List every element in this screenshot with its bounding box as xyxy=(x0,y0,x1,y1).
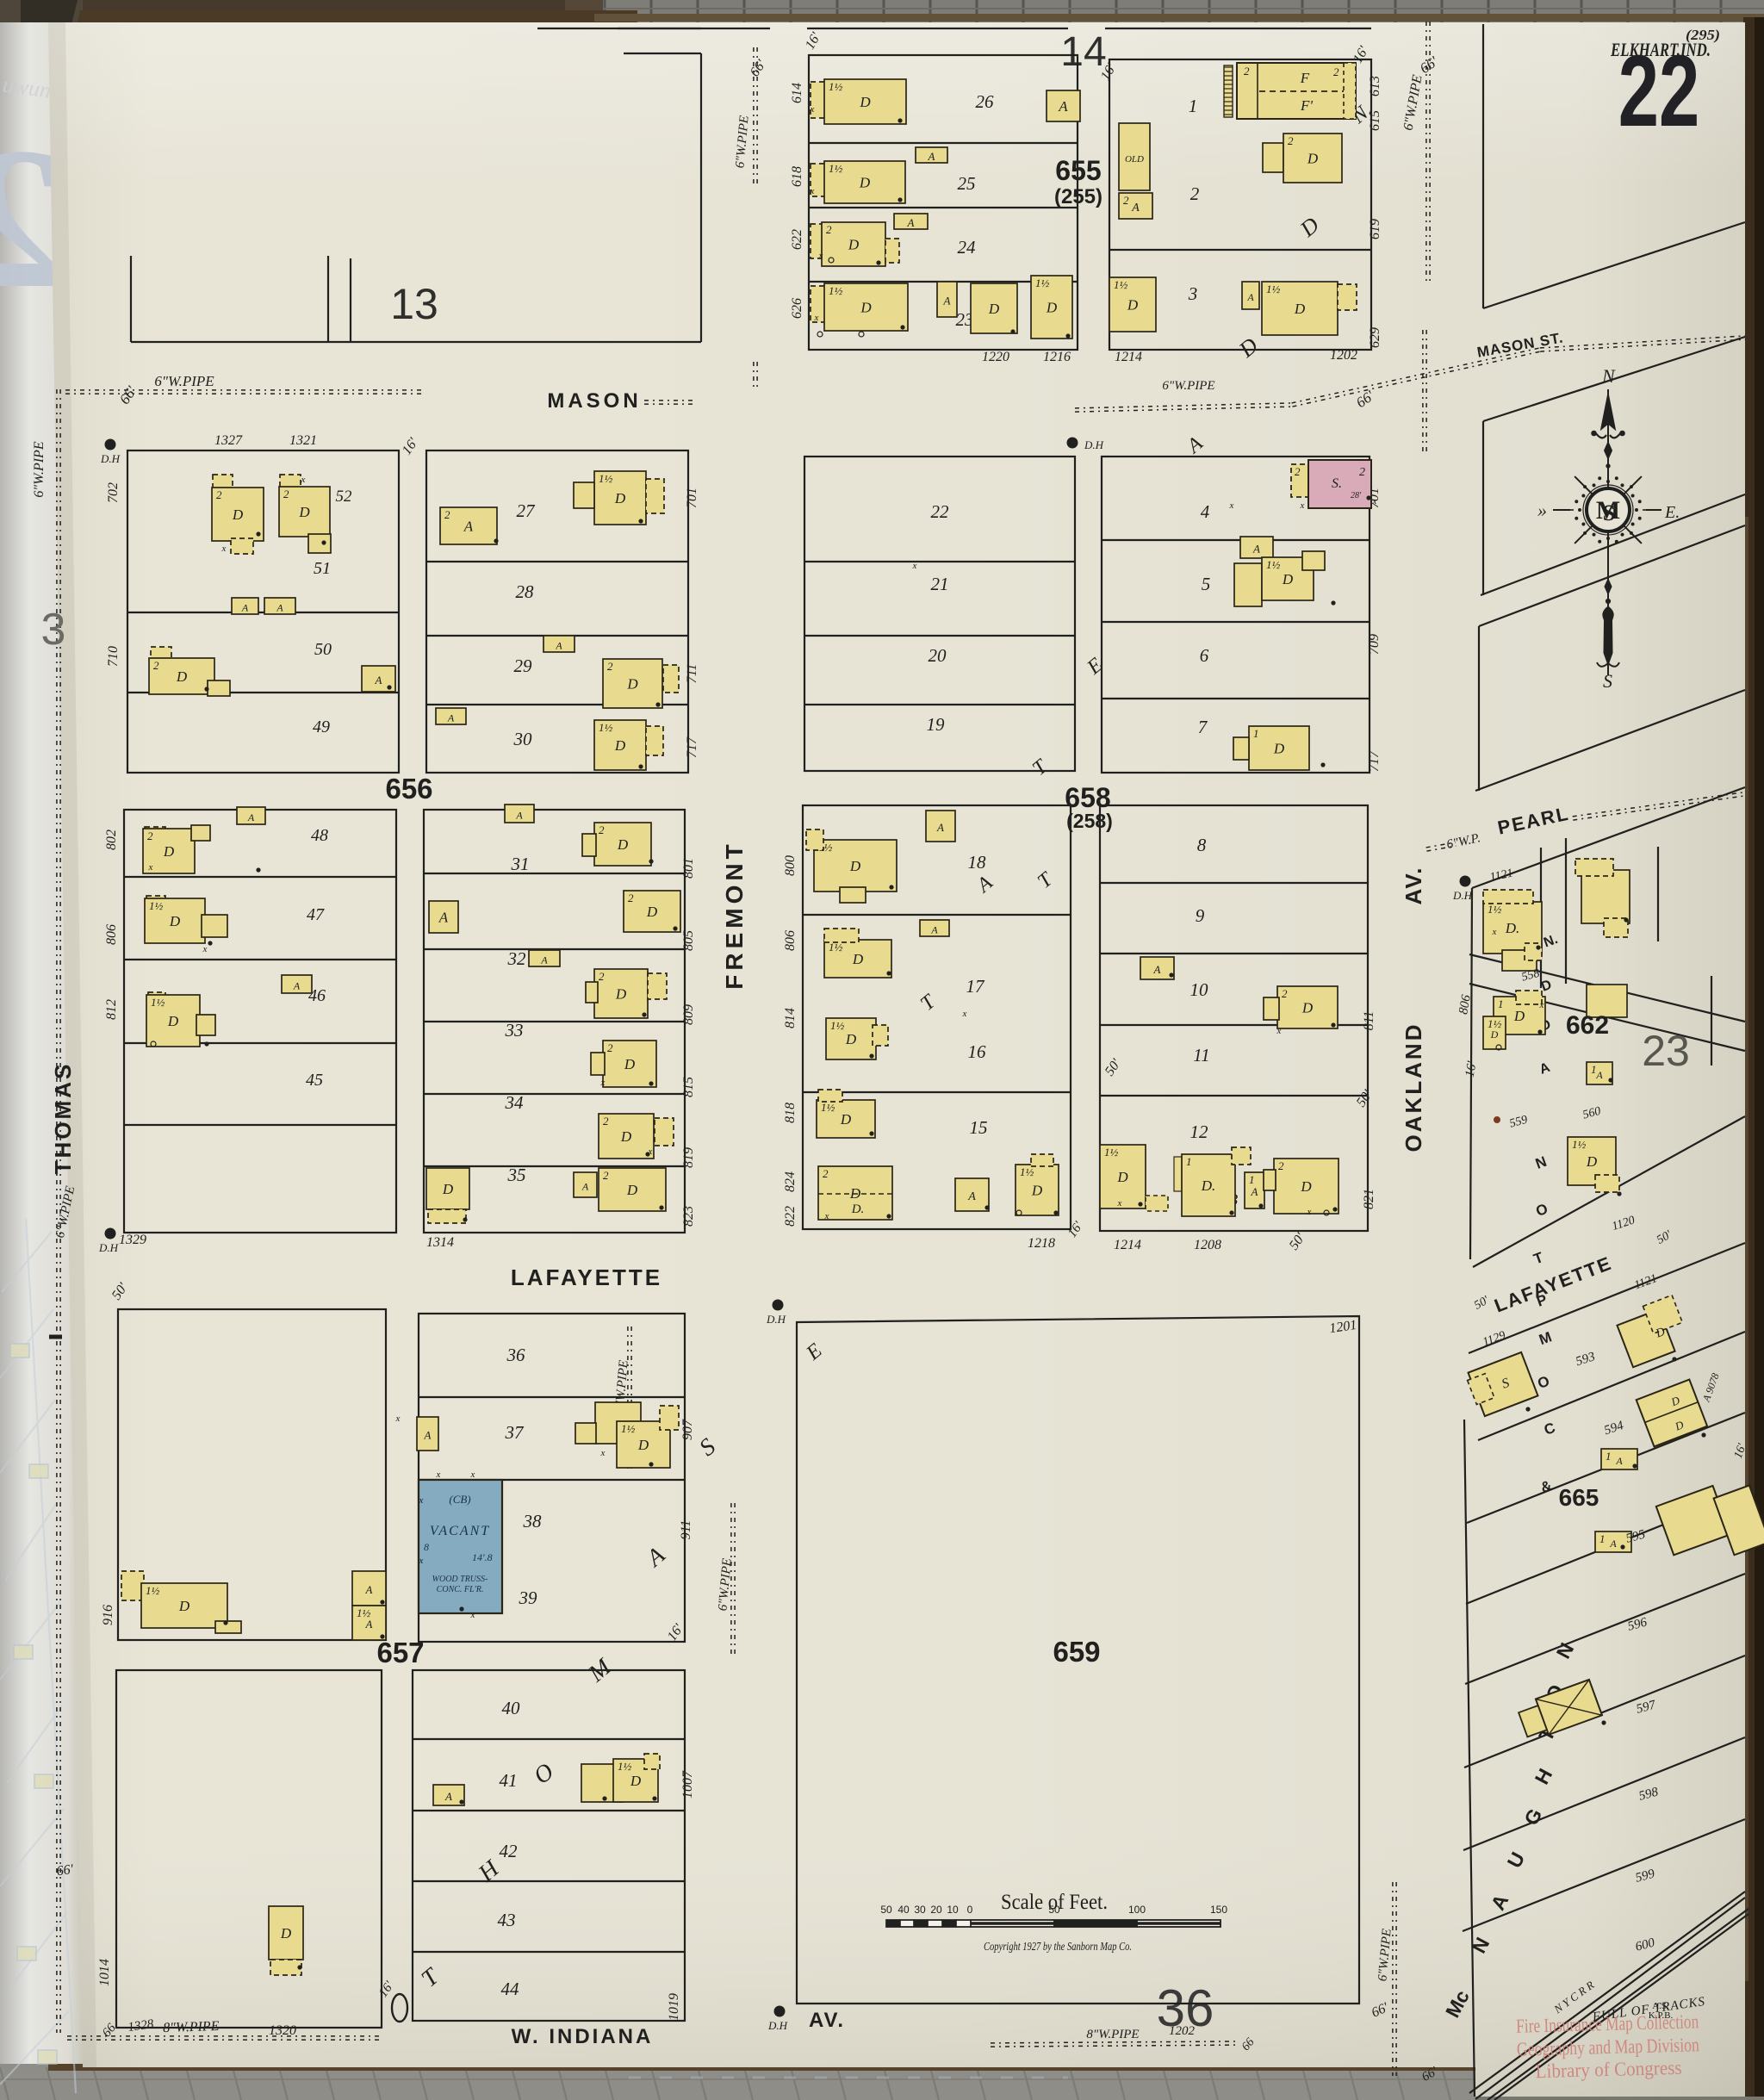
svg-text:710: 710 xyxy=(106,646,121,667)
svg-text:13: 13 xyxy=(390,280,438,328)
svg-text:818: 818 xyxy=(783,1103,798,1123)
svg-text:16': 16' xyxy=(1463,1059,1480,1078)
svg-text:A: A xyxy=(276,602,283,614)
svg-text:1208: 1208 xyxy=(1194,1238,1221,1252)
svg-text:D: D xyxy=(637,1437,649,1453)
svg-text:43: 43 xyxy=(498,1910,516,1930)
svg-text:618: 618 xyxy=(790,166,804,187)
svg-text:629: 629 xyxy=(1368,327,1382,348)
svg-text:D: D xyxy=(617,836,629,853)
svg-text:D: D xyxy=(852,951,864,967)
svg-text:D: D xyxy=(1031,1183,1043,1199)
svg-text:31: 31 xyxy=(511,854,530,874)
svg-text:A: A xyxy=(928,150,935,163)
svg-text:(255): (255) xyxy=(1054,185,1102,208)
svg-text:1218: 1218 xyxy=(1028,1236,1055,1251)
svg-text:1½: 1½ xyxy=(1266,283,1281,295)
svg-text:D: D xyxy=(163,843,175,860)
svg-text:5: 5 xyxy=(1202,574,1211,594)
svg-text:D.: D. xyxy=(1201,1177,1216,1194)
svg-text:40: 40 xyxy=(898,1904,910,1916)
svg-text:6"W.PIPE: 6"W.PIPE xyxy=(1162,379,1214,393)
svg-text:S.: S. xyxy=(1332,476,1342,491)
svg-text:10: 10 xyxy=(947,1904,959,1916)
svg-text:23: 23 xyxy=(1642,1027,1690,1075)
svg-text:22: 22 xyxy=(1618,34,1699,147)
svg-text:1½: 1½ xyxy=(599,721,613,734)
svg-text:655: 655 xyxy=(1055,155,1101,186)
svg-text:50: 50 xyxy=(880,1904,892,1916)
svg-text:A: A xyxy=(447,712,455,724)
svg-text:D: D xyxy=(1282,571,1294,587)
svg-text:D: D xyxy=(1490,1028,1499,1041)
svg-text:N: N xyxy=(1601,365,1616,387)
svg-text:18: 18 xyxy=(968,852,987,873)
svg-text:50: 50 xyxy=(314,640,332,659)
svg-text:D: D xyxy=(859,175,871,191)
svg-text:1½: 1½ xyxy=(1020,1165,1034,1178)
svg-text:D: D xyxy=(1513,1008,1525,1024)
svg-text:815: 815 xyxy=(681,1077,696,1097)
svg-text:D: D xyxy=(1300,1178,1312,1195)
svg-text:6: 6 xyxy=(1200,645,1209,666)
svg-text:Copyright 1927 by the Sanborn: Copyright 1927 by the Sanborn Map Co. xyxy=(984,1941,1132,1954)
svg-text:x: x xyxy=(1539,1000,1544,1010)
svg-text:1327: 1327 xyxy=(214,433,243,448)
svg-text:8: 8 xyxy=(1197,835,1207,855)
svg-text:D: D xyxy=(1273,741,1285,757)
svg-text:2: 2 xyxy=(147,829,153,842)
svg-text:701: 701 xyxy=(685,488,699,508)
svg-text:17: 17 xyxy=(966,976,986,997)
svg-text:14'.8: 14'.8 xyxy=(472,1551,493,1563)
svg-text:x: x xyxy=(202,944,208,954)
svg-text:1: 1 xyxy=(1186,1155,1192,1168)
svg-text:A: A xyxy=(293,980,301,992)
svg-text:A: A xyxy=(1058,98,1068,115)
svg-text:2: 2 xyxy=(1282,987,1288,1000)
svg-text:2: 2 xyxy=(153,659,159,672)
svg-text:2: 2 xyxy=(607,1041,613,1054)
svg-text:FREMONT: FREMONT xyxy=(721,840,748,989)
svg-text:F: F xyxy=(1300,70,1310,86)
svg-text:D: D xyxy=(840,1111,852,1128)
svg-text:2: 2 xyxy=(444,508,450,521)
svg-text:39: 39 xyxy=(519,1587,538,1608)
svg-text:x: x xyxy=(600,1078,606,1088)
svg-text:(CB): (CB) xyxy=(449,1493,470,1506)
svg-text:A: A xyxy=(424,1429,432,1442)
svg-text:8: 8 xyxy=(424,1541,429,1553)
svg-text:811: 811 xyxy=(1362,1011,1376,1031)
svg-text:LAFAYETTE: LAFAYETTE xyxy=(511,1264,662,1290)
svg-text:2: 2 xyxy=(1123,194,1129,207)
svg-text:30: 30 xyxy=(513,729,533,749)
svg-text:D: D xyxy=(630,1773,642,1789)
svg-text:38: 38 xyxy=(523,1511,543,1532)
svg-text:3: 3 xyxy=(41,605,66,655)
svg-text:F': F' xyxy=(1300,97,1313,114)
svg-text:2: 2 xyxy=(599,823,605,836)
svg-text:14: 14 xyxy=(1060,29,1106,75)
svg-text:34: 34 xyxy=(505,1092,525,1113)
svg-text:D: D xyxy=(848,237,860,253)
svg-text:51: 51 xyxy=(314,559,331,578)
svg-text:1007: 1007 xyxy=(680,1770,695,1799)
svg-text:824: 824 xyxy=(783,1171,798,1192)
svg-text:D: D xyxy=(860,300,872,316)
svg-text:x: x xyxy=(1117,1198,1122,1208)
svg-text:4: 4 xyxy=(1201,501,1210,522)
svg-text:11: 11 xyxy=(1193,1045,1209,1066)
svg-text:D.H: D.H xyxy=(98,1241,119,1254)
svg-text:916: 916 xyxy=(101,1605,115,1625)
svg-text:AV.: AV. xyxy=(809,2009,845,2032)
svg-text:805: 805 xyxy=(681,930,696,951)
svg-text:D: D xyxy=(620,1128,632,1145)
svg-text:A: A xyxy=(1595,1069,1603,1081)
svg-text:1216: 1216 xyxy=(1043,350,1071,364)
svg-text:33: 33 xyxy=(505,1020,524,1041)
svg-text:OLD: OLD xyxy=(1125,154,1144,165)
svg-text:D: D xyxy=(988,301,1000,317)
svg-text:D: D xyxy=(1046,300,1058,316)
svg-text:622: 622 xyxy=(790,229,804,250)
svg-text:25: 25 xyxy=(958,173,976,194)
svg-text:709: 709 xyxy=(1367,634,1382,655)
svg-text:A: A xyxy=(463,519,474,535)
svg-text:800: 800 xyxy=(783,855,798,876)
svg-text:x: x xyxy=(810,104,815,115)
svg-text:A: A xyxy=(438,910,449,926)
svg-text:36: 36 xyxy=(506,1345,526,1365)
svg-text:45: 45 xyxy=(306,1071,323,1090)
svg-text:2: 2 xyxy=(599,970,605,983)
svg-text:x: x xyxy=(1276,1026,1282,1036)
svg-text:1½: 1½ xyxy=(146,1584,160,1597)
svg-text:1½: 1½ xyxy=(821,1101,835,1114)
svg-text:614: 614 xyxy=(790,83,804,103)
svg-text:711: 711 xyxy=(685,664,699,684)
svg-text:A: A xyxy=(365,1618,373,1631)
svg-text:16: 16 xyxy=(968,1041,987,1062)
svg-text:x: x xyxy=(810,186,815,196)
svg-text:717: 717 xyxy=(1367,750,1382,772)
svg-text:A: A xyxy=(930,924,938,936)
svg-text:D.H: D.H xyxy=(1084,438,1104,451)
svg-text:1019: 1019 xyxy=(667,1993,681,2021)
svg-text:1: 1 xyxy=(1599,1532,1606,1545)
svg-text:D: D xyxy=(626,1182,638,1198)
svg-text:19: 19 xyxy=(927,714,946,735)
svg-text:659: 659 xyxy=(1053,1636,1100,1668)
svg-text:717: 717 xyxy=(685,736,699,758)
svg-text:615: 615 xyxy=(1368,110,1382,131)
svg-text:36: 36 xyxy=(1157,1979,1214,2037)
svg-text:D: D xyxy=(298,504,310,520)
svg-text:1½: 1½ xyxy=(357,1606,371,1619)
svg-text:29: 29 xyxy=(514,655,533,676)
svg-text:D: D xyxy=(280,1925,292,1942)
svg-text:26: 26 xyxy=(976,91,995,112)
svg-text:822: 822 xyxy=(783,1206,798,1227)
svg-text:x: x xyxy=(470,1469,475,1480)
svg-text:22: 22 xyxy=(931,501,950,522)
svg-text:2: 2 xyxy=(603,1115,609,1128)
svg-text:9: 9 xyxy=(1196,905,1205,926)
svg-text:28': 28' xyxy=(1351,491,1362,500)
svg-text:A: A xyxy=(1609,1538,1617,1550)
svg-text:D.H: D.H xyxy=(766,1313,786,1326)
svg-text:7: 7 xyxy=(1198,717,1208,737)
svg-text:907: 907 xyxy=(680,1419,695,1440)
svg-text:2: 2 xyxy=(628,892,634,904)
svg-text:662: 662 xyxy=(1566,1011,1609,1040)
svg-text:1314: 1314 xyxy=(426,1235,454,1250)
svg-text:A: A xyxy=(365,1583,373,1596)
svg-text:D: D xyxy=(615,986,627,1003)
svg-text:x: x xyxy=(600,1448,606,1458)
svg-text:CONC. FL'R.: CONC. FL'R. xyxy=(437,1585,484,1594)
svg-text:x: x xyxy=(436,1469,441,1480)
svg-text:x: x xyxy=(470,1610,475,1620)
svg-text:D.H: D.H xyxy=(1452,889,1473,902)
svg-text:66': 66' xyxy=(56,1862,75,1879)
svg-text:A: A xyxy=(515,810,523,822)
svg-text:626: 626 xyxy=(790,298,804,319)
svg-text:27: 27 xyxy=(517,500,537,521)
svg-text:x: x xyxy=(419,1556,424,1566)
svg-text:1½: 1½ xyxy=(1572,1138,1587,1151)
svg-text:35: 35 xyxy=(507,1165,526,1185)
svg-text:x: x xyxy=(221,544,227,554)
svg-text:823: 823 xyxy=(681,1206,696,1227)
svg-text:6"W.PIPE: 6"W.PIPE xyxy=(32,441,47,497)
svg-text:1: 1 xyxy=(1249,1173,1255,1186)
svg-text:1½: 1½ xyxy=(149,899,164,912)
svg-text:2: 2 xyxy=(1359,466,1365,479)
svg-text:1214: 1214 xyxy=(1114,1238,1141,1252)
svg-text:1214: 1214 xyxy=(1115,350,1142,364)
svg-text:D: D xyxy=(178,1598,190,1614)
svg-text:x: x xyxy=(148,862,153,873)
svg-text:D: D xyxy=(849,858,861,874)
svg-text:D: D xyxy=(614,737,626,754)
svg-text:A: A xyxy=(581,1181,589,1193)
svg-text:A: A xyxy=(936,821,944,834)
svg-text:1½: 1½ xyxy=(1104,1146,1119,1159)
svg-text:OAKLAND: OAKLAND xyxy=(1401,1022,1426,1153)
svg-text:A: A xyxy=(967,1190,976,1203)
svg-text:47: 47 xyxy=(307,905,325,924)
svg-text:D: D xyxy=(1301,1000,1314,1016)
svg-text:x: x xyxy=(824,1211,829,1221)
svg-text:D.H: D.H xyxy=(100,452,121,465)
svg-text:911: 911 xyxy=(679,1520,693,1540)
svg-text:2: 2 xyxy=(1190,183,1200,204)
svg-text:2: 2 xyxy=(607,660,613,673)
svg-text:100: 100 xyxy=(1128,1904,1146,1916)
svg-text:D: D xyxy=(859,94,871,110)
svg-text:1: 1 xyxy=(1606,1450,1612,1463)
svg-text:x: x xyxy=(1372,496,1377,506)
svg-text:D: D xyxy=(845,1031,857,1047)
svg-text:A: A xyxy=(1246,291,1254,303)
svg-text:E.: E. xyxy=(1664,503,1680,522)
svg-text:806: 806 xyxy=(783,930,798,951)
svg-text:2: 2 xyxy=(1295,465,1301,478)
svg-text:D: D xyxy=(646,904,658,920)
svg-text:1320: 1320 xyxy=(269,2023,296,2038)
svg-text:15: 15 xyxy=(970,1117,988,1138)
svg-text:20: 20 xyxy=(929,645,947,666)
svg-text:D.H: D.H xyxy=(767,2019,788,2032)
svg-text:821: 821 xyxy=(1362,1189,1376,1209)
svg-text:814: 814 xyxy=(783,1008,798,1028)
svg-text:1: 1 xyxy=(1498,997,1504,1010)
svg-text:12: 12 xyxy=(1190,1121,1209,1142)
svg-text:2: 2 xyxy=(283,488,289,500)
svg-text:32: 32 xyxy=(507,948,527,969)
svg-text:x: x xyxy=(419,1495,424,1506)
svg-text:41: 41 xyxy=(500,1770,518,1791)
svg-text:1½: 1½ xyxy=(829,284,843,297)
svg-text:1½: 1½ xyxy=(1488,1017,1502,1030)
svg-text:2: 2 xyxy=(1278,1159,1284,1172)
svg-text:1½: 1½ xyxy=(618,1760,632,1773)
svg-text:52: 52 xyxy=(336,488,353,506)
svg-text:1½: 1½ xyxy=(599,472,613,485)
svg-text:x: x xyxy=(1307,1207,1312,1217)
svg-text:37: 37 xyxy=(505,1422,525,1443)
svg-text:1½: 1½ xyxy=(1035,276,1050,289)
svg-text:2: 2 xyxy=(216,488,222,501)
svg-text:0: 0 xyxy=(967,1904,973,1916)
svg-text:1½: 1½ xyxy=(829,162,843,175)
svg-text:MASON: MASON xyxy=(547,389,641,413)
svg-text:x: x xyxy=(962,1009,967,1019)
svg-text:1202: 1202 xyxy=(1330,348,1357,363)
svg-text:1½: 1½ xyxy=(1114,278,1128,291)
svg-text:D.: D. xyxy=(1505,920,1520,936)
svg-text:A: A xyxy=(1153,963,1161,976)
svg-text:x: x xyxy=(818,251,823,261)
svg-text:1½: 1½ xyxy=(151,996,165,1009)
svg-text:A: A xyxy=(540,954,548,966)
svg-text:1329: 1329 xyxy=(119,1233,146,1247)
svg-text:D: D xyxy=(1294,301,1306,317)
svg-text:801: 801 xyxy=(681,858,696,879)
svg-text:812: 812 xyxy=(104,999,119,1020)
svg-text:819: 819 xyxy=(681,1147,696,1168)
svg-text:1014: 1014 xyxy=(97,1959,112,1986)
svg-text:A: A xyxy=(907,216,915,229)
svg-text:D: D xyxy=(232,506,244,523)
svg-text:D: D xyxy=(624,1056,636,1072)
svg-text:x: x xyxy=(814,313,819,323)
svg-text:48: 48 xyxy=(311,826,328,845)
svg-text:20: 20 xyxy=(930,1904,942,1916)
svg-text:50: 50 xyxy=(1048,1904,1060,1916)
svg-text:1321: 1321 xyxy=(289,433,317,448)
svg-text:658: 658 xyxy=(1065,782,1110,813)
svg-text:A: A xyxy=(943,295,951,308)
svg-text:S: S xyxy=(1603,500,1615,525)
svg-text:(258): (258) xyxy=(1066,810,1113,832)
svg-text:8"W.PIPE: 8"W.PIPE xyxy=(1086,2028,1139,2041)
svg-text:1½: 1½ xyxy=(1488,903,1502,916)
svg-text:21: 21 xyxy=(931,574,949,594)
svg-text:x: x xyxy=(395,1413,401,1424)
svg-text:10: 10 xyxy=(1190,979,1209,1000)
svg-text:802: 802 xyxy=(104,829,119,850)
svg-text:1½: 1½ xyxy=(621,1422,636,1435)
svg-text:A: A xyxy=(247,811,255,823)
svg-text:1½: 1½ xyxy=(829,80,843,93)
svg-text:D: D xyxy=(1116,1169,1128,1185)
svg-text:D: D xyxy=(626,676,638,693)
svg-text:806: 806 xyxy=(104,924,119,945)
svg-text:D: D xyxy=(1307,151,1319,167)
svg-text:x: x xyxy=(1229,500,1234,511)
svg-text:42: 42 xyxy=(500,1841,519,1861)
svg-text:A: A xyxy=(1615,1455,1623,1467)
svg-text:D: D xyxy=(167,1013,179,1029)
svg-text:1: 1 xyxy=(1591,1063,1597,1076)
svg-text:Library of Congress: Library of Congress xyxy=(1535,2057,1682,2082)
svg-text:665: 665 xyxy=(1559,1484,1599,1511)
svg-text:W. INDIANA: W. INDIANA xyxy=(512,2025,654,2048)
svg-text:809: 809 xyxy=(681,1004,696,1025)
svg-text:D: D xyxy=(1127,297,1139,314)
svg-text:THOMAS: THOMAS xyxy=(50,1062,76,1175)
svg-text:D: D xyxy=(442,1181,454,1197)
svg-text:1220: 1220 xyxy=(982,350,1009,364)
svg-text:WOOD TRUSS-: WOOD TRUSS- xyxy=(432,1575,488,1584)
svg-text:x: x xyxy=(301,475,306,485)
svg-text:x: x xyxy=(912,561,917,571)
svg-text:1½: 1½ xyxy=(1266,558,1281,571)
svg-text:K.P.B.: K.P.B. xyxy=(1649,2010,1674,2021)
svg-text:24: 24 xyxy=(958,237,977,258)
svg-text:S: S xyxy=(1603,670,1612,692)
svg-text:A: A xyxy=(555,640,562,652)
svg-text:AV.: AV. xyxy=(1401,866,1426,904)
svg-text:A: A xyxy=(241,602,249,614)
svg-text:A: A xyxy=(375,674,382,687)
svg-text:6"W.PIPE: 6"W.PIPE xyxy=(154,373,214,389)
svg-text:1: 1 xyxy=(1253,727,1259,740)
svg-text:D.: D. xyxy=(851,1202,865,1216)
svg-text:2: 2 xyxy=(1288,134,1294,147)
svg-text:A: A xyxy=(1251,1185,1258,1198)
svg-text:3: 3 xyxy=(1188,283,1198,304)
svg-text:49: 49 xyxy=(313,718,330,736)
svg-text:»: » xyxy=(1537,500,1547,521)
svg-text:2: 2 xyxy=(1244,65,1250,78)
svg-text:613: 613 xyxy=(1368,76,1382,96)
svg-text:A: A xyxy=(1131,202,1140,214)
svg-text:44: 44 xyxy=(501,1979,520,1999)
svg-text:40: 40 xyxy=(502,1698,521,1718)
svg-text:x: x xyxy=(1492,927,1497,937)
svg-text:150: 150 xyxy=(1210,1904,1227,1916)
svg-text:619: 619 xyxy=(1368,219,1382,239)
svg-text:D: D xyxy=(169,913,181,929)
svg-text:2: 2 xyxy=(823,1167,829,1180)
svg-text:A: A xyxy=(1252,543,1260,556)
svg-text:1½: 1½ xyxy=(830,1019,845,1032)
